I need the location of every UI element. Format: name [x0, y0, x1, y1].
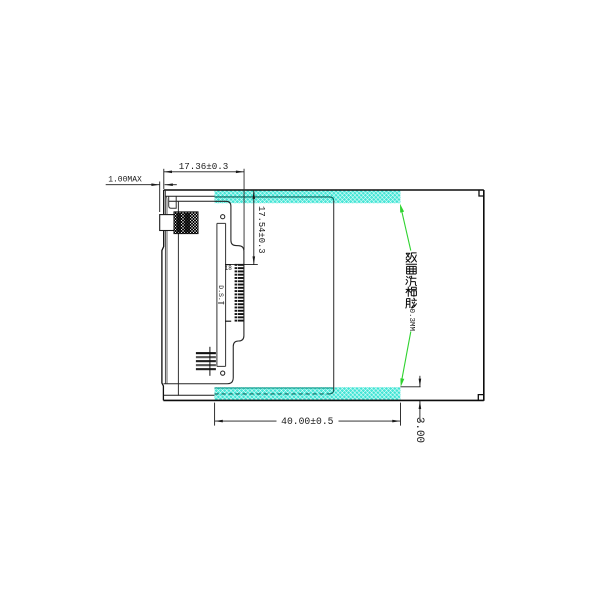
svg-text:17.36±0.3: 17.36±0.3 — [179, 161, 229, 172]
svg-text:0.3MM: 0.3MM — [407, 308, 415, 331]
svg-text:18: 18 — [225, 265, 233, 272]
svg-text:D.S.T: D.S.T — [217, 285, 224, 305]
svg-text:40.00±0.5: 40.00±0.5 — [281, 416, 334, 427]
svg-text:3.00: 3.00 — [413, 417, 425, 443]
svg-text:1.00MAX: 1.00MAX — [108, 175, 142, 184]
svg-text:17.54±0.3: 17.54±0.3 — [256, 206, 266, 254]
